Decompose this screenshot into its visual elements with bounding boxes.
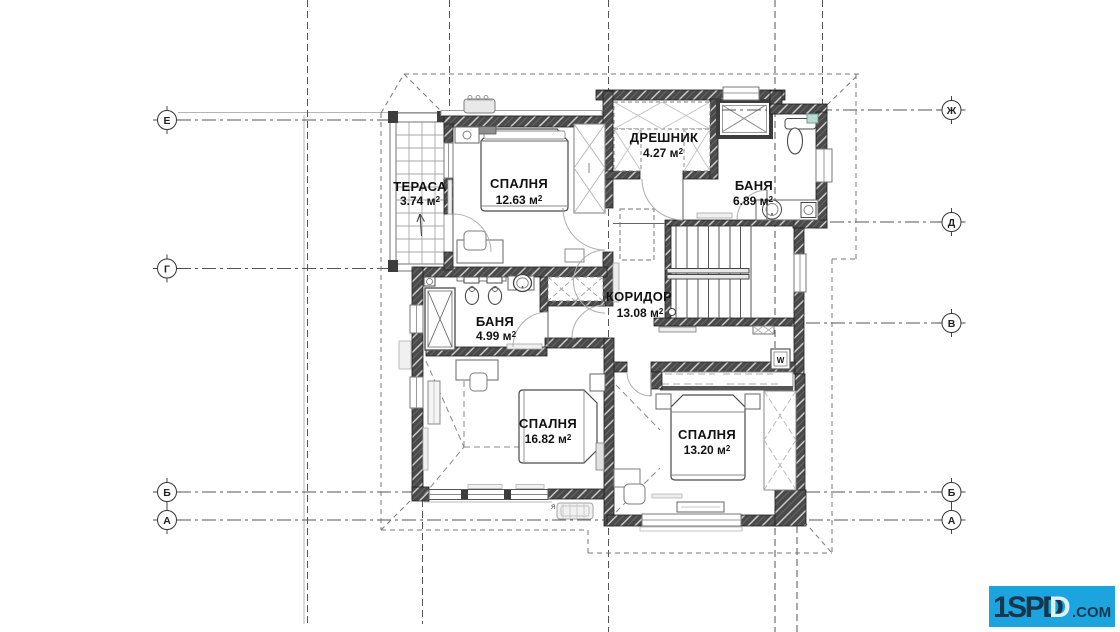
svg-text:Б: Б xyxy=(948,487,956,499)
svg-text:12.63 м2: 12.63 м2 xyxy=(496,193,543,207)
svg-text:СПАЛНЯ: СПАЛНЯ xyxy=(490,176,548,191)
svg-text:ДРЕШНИК: ДРЕШНИК xyxy=(630,130,698,145)
svg-text:13.08 м2: 13.08 м2 xyxy=(617,306,664,320)
svg-text:4.27 м2: 4.27 м2 xyxy=(643,146,684,160)
svg-text:БАНЯ: БАНЯ xyxy=(476,314,514,329)
svg-text:W: W xyxy=(777,356,785,365)
svg-text:Д: Д xyxy=(948,217,956,229)
svg-text:БАНЯ: БАНЯ xyxy=(735,178,773,193)
svg-text:А: А xyxy=(948,515,956,527)
svg-text:ТЕРАСА: ТЕРАСА xyxy=(393,179,447,194)
svg-text:D: D xyxy=(1049,591,1070,624)
svg-text:СПАЛНЯ: СПАЛНЯ xyxy=(678,427,736,442)
svg-text:Г: Г xyxy=(164,264,170,276)
svg-text:Б: Б xyxy=(163,487,171,499)
svg-text:В: В xyxy=(948,318,956,330)
svg-text:Е: Е xyxy=(163,115,170,127)
svg-text:4.99 м2: 4.99 м2 xyxy=(476,329,517,343)
svg-text:.COM: .COM xyxy=(1072,604,1111,621)
svg-text:СПАЛНЯ: СПАЛНЯ xyxy=(519,416,577,431)
svg-text:3.74 м2: 3.74 м2 xyxy=(400,194,441,208)
svg-text:16.82 м2: 16.82 м2 xyxy=(525,432,572,446)
svg-text:6.89 м2: 6.89 м2 xyxy=(733,194,774,208)
svg-text:КОРИДОР: КОРИДОР xyxy=(606,289,672,304)
svg-text:А: А xyxy=(163,515,171,527)
svg-text:13.20 м2: 13.20 м2 xyxy=(684,443,731,457)
svg-text:Ж: Ж xyxy=(946,105,957,117)
svg-text:я: я xyxy=(551,502,555,511)
